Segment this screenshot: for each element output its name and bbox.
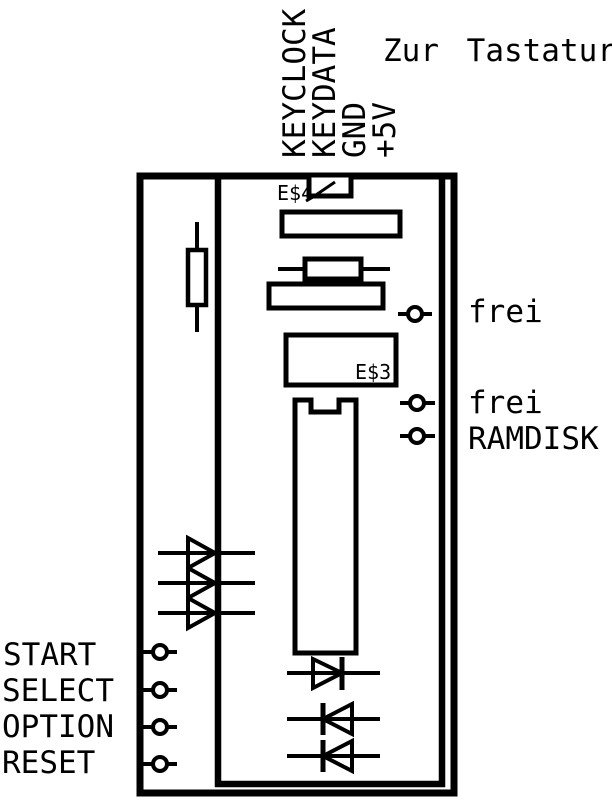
pad-label-option: OPTION — [2, 709, 114, 745]
pad-circle — [153, 720, 167, 734]
pad-option — [143, 720, 177, 734]
diode-bottom-2 — [287, 703, 380, 735]
pad-ramdisk — [400, 429, 435, 443]
jumper-box — [306, 175, 351, 201]
pad-label-ramdisk: RAMDISK — [468, 421, 599, 457]
pad-circle — [408, 307, 422, 321]
schematic-canvas: E$4 E$3 — [0, 0, 612, 800]
ic-e3: E$3 — [286, 335, 396, 385]
pad-circle — [153, 757, 167, 771]
resistor-body — [188, 250, 206, 305]
pad-circle — [153, 645, 167, 659]
pad-label-frei-1: frei — [468, 294, 543, 330]
pad-frei-1 — [398, 307, 432, 321]
pin-label-5v: +5V — [367, 102, 403, 158]
diode-array-left — [158, 538, 255, 628]
crystal-body — [305, 259, 361, 279]
pad-circle — [410, 396, 424, 410]
pad-reset — [143, 757, 177, 771]
resistor-symbol — [188, 222, 206, 332]
crystal-symbol — [269, 259, 390, 308]
pad-circle — [153, 683, 167, 697]
pad-circle — [410, 429, 424, 443]
pad-start — [143, 645, 177, 659]
pad-label-select: SELECT — [2, 673, 114, 709]
circuit-diagram: E$4 E$3 — [0, 0, 612, 800]
pad-select — [143, 683, 177, 697]
ic-top — [282, 212, 400, 236]
diode-bottom-3 — [287, 740, 380, 772]
pad-label-start: START — [3, 637, 96, 673]
pad-label-frei-2: frei — [468, 385, 543, 421]
ic-e3-label: E$3 — [355, 360, 391, 384]
crystal-base — [269, 284, 383, 308]
title-zur-tastatur: Zur Tastatur — [383, 33, 612, 69]
pad-label-reset: RESET — [2, 745, 95, 781]
pad-frei-2 — [400, 396, 435, 410]
diode-bottom-1 — [287, 657, 380, 690]
ic-tall — [295, 400, 356, 653]
